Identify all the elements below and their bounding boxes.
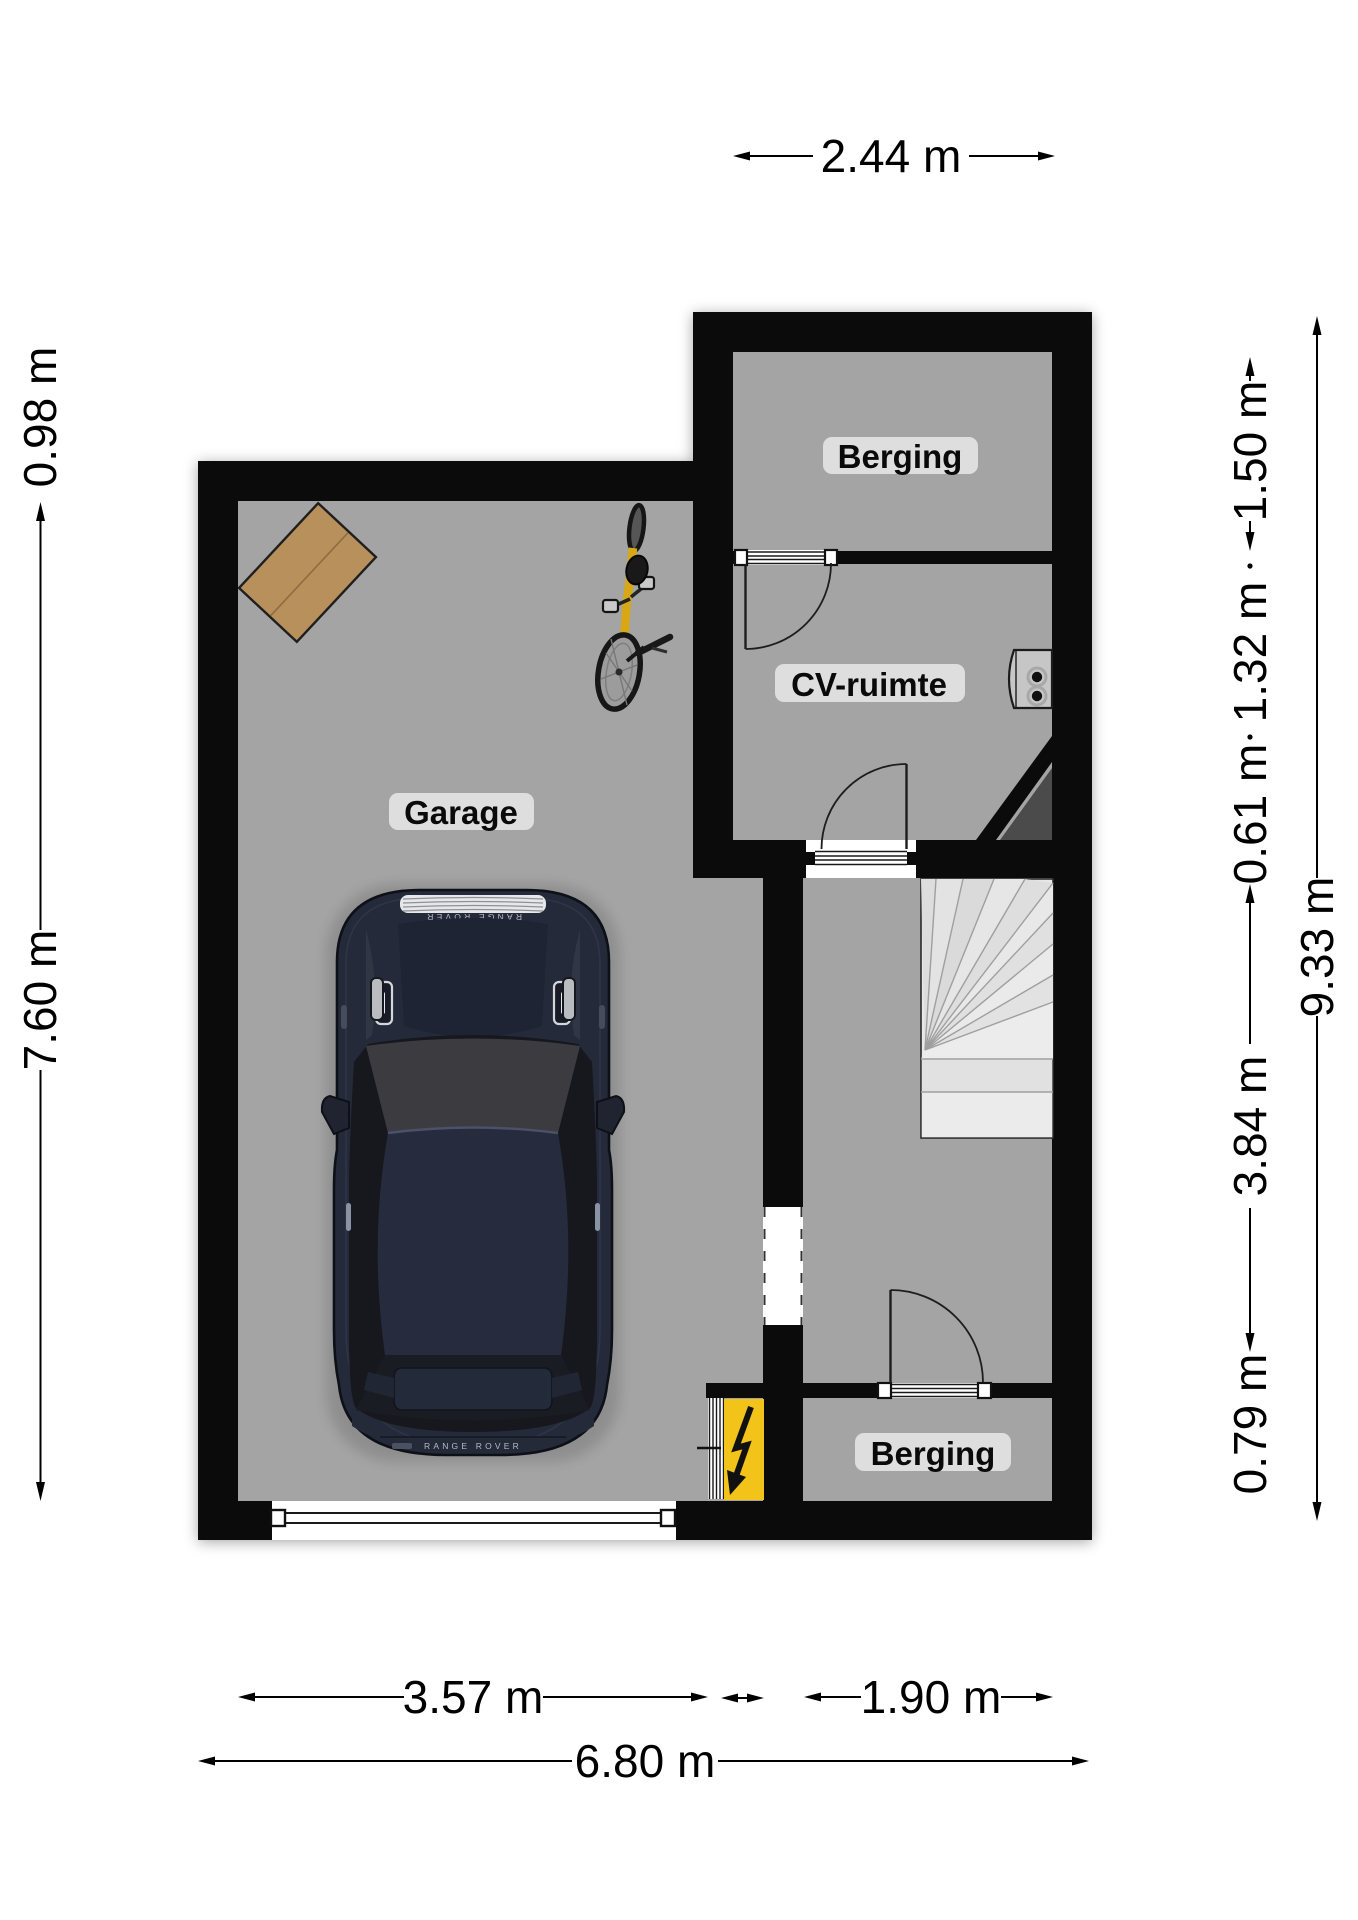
svg-text:3.84 m: 3.84 m: [1224, 1056, 1276, 1197]
svg-text:0.61 m: 0.61 m: [1224, 744, 1276, 885]
svg-text:3.57 m: 3.57 m: [403, 1671, 544, 1723]
svg-text:RANGE ROVER: RANGE ROVER: [424, 1441, 522, 1451]
svg-text:0.98 m: 0.98 m: [14, 347, 66, 488]
svg-text:Garage: Garage: [404, 794, 518, 831]
svg-text:0.79 m: 0.79 m: [1224, 1354, 1276, 1495]
svg-text:CV-ruimte: CV-ruimte: [791, 666, 947, 703]
svg-text:1.90 m: 1.90 m: [861, 1671, 1002, 1723]
svg-text:1.50 m: 1.50 m: [1224, 381, 1276, 522]
svg-text:2.44 m: 2.44 m: [821, 130, 962, 182]
svg-text:Berging: Berging: [838, 438, 963, 475]
svg-text:6.80 m: 6.80 m: [575, 1735, 716, 1787]
svg-text:Berging: Berging: [871, 1435, 996, 1472]
svg-text:9.33 m: 9.33 m: [1291, 877, 1343, 1018]
svg-text:7.60 m: 7.60 m: [14, 930, 66, 1071]
svg-text:1.32 m: 1.32 m: [1224, 582, 1276, 723]
